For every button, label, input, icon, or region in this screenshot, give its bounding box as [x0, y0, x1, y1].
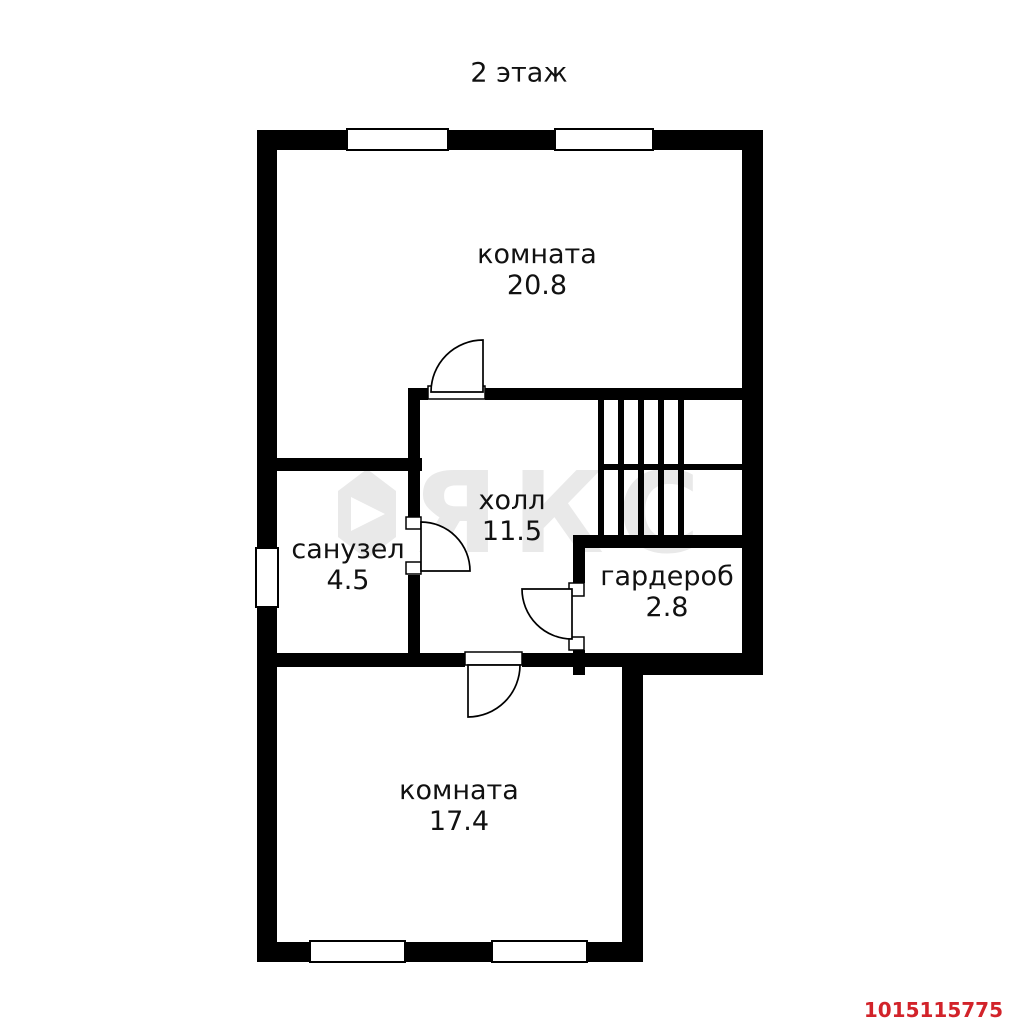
outer-wall-right-lower [622, 653, 643, 962]
window-bottom-left [310, 941, 405, 962]
room-label-hall: холл 11.5 [478, 485, 545, 547]
wall-interior-bottom-left [277, 653, 465, 667]
photo-id-badge: 1015115775 [864, 998, 1003, 1022]
room-label-komnata-bottom: комната 17.4 [399, 775, 519, 837]
door-arc-room1 [431, 340, 483, 392]
room-area: 20.8 [477, 270, 597, 301]
window-top-right [555, 129, 653, 150]
window-bottom-right [492, 941, 587, 962]
room-name: холл [478, 485, 545, 516]
door-jamb-bathroom-top [406, 517, 421, 529]
room-area: 11.5 [478, 516, 545, 547]
outer-wall-right-upper [742, 130, 763, 675]
floor-plan-page: 2 этаж ЯКС [0, 0, 1020, 1026]
window-bathroom [256, 548, 278, 607]
wall-hall-left-vertical [408, 388, 420, 470]
room-area: 2.8 [600, 592, 733, 623]
room-name: санузел [291, 534, 404, 565]
wall-bathroom-top [277, 458, 422, 471]
room-label-wardrobe: гардероб 2.8 [600, 561, 733, 623]
outer-wall-top [257, 130, 763, 150]
door-arc-bathroom [421, 522, 470, 571]
outer-wall-left [257, 130, 277, 962]
wall-hall-top-right-segment [485, 388, 742, 400]
wall-bathroom-right-lower [408, 575, 420, 657]
room-name: гардероб [600, 561, 733, 592]
door-arc-wardrobe [522, 589, 572, 639]
wall-wardrobe-left-lower [573, 650, 585, 675]
room-name: комната [477, 239, 597, 270]
staircase [598, 400, 742, 537]
wall-bathroom-right-upper [408, 470, 420, 518]
door-sill-room2 [465, 652, 522, 665]
room-label-bathroom: санузел 4.5 [291, 534, 404, 596]
door-arc-room2 [468, 665, 520, 717]
room-name: комната [399, 775, 519, 806]
room-label-komnata-top: комната 20.8 [477, 239, 597, 301]
room-area: 17.4 [399, 806, 519, 837]
room-area: 4.5 [291, 565, 404, 596]
window-top-left [347, 129, 448, 150]
door-jamb-bathroom-bottom [406, 562, 421, 574]
